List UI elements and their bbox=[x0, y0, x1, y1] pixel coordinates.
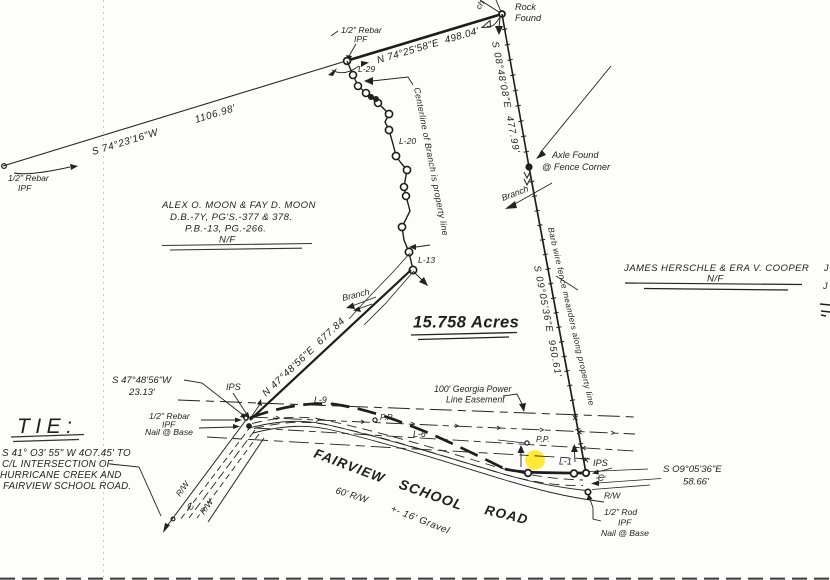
svg-text:L-29: L-29 bbox=[358, 64, 375, 74]
svg-text:L-13: L-13 bbox=[418, 255, 435, 265]
svg-text:IPF: IPF bbox=[18, 183, 32, 193]
svg-text:Found: Found bbox=[515, 13, 542, 23]
svg-text:23.13': 23.13' bbox=[128, 387, 156, 398]
svg-text:N/F: N/F bbox=[219, 235, 236, 246]
svg-text:15.758 Acres: 15.758 Acres bbox=[413, 314, 519, 332]
svg-text:S 41° O3' 55" W 4O7.45' TO: S 41° O3' 55" W 4O7.45' TO bbox=[2, 448, 131, 459]
svg-text:IPS: IPS bbox=[226, 382, 242, 392]
svg-text:Barb wire fence meanders along: Barb wire fence meanders along property … bbox=[546, 226, 596, 406]
svg-text:1106.98': 1106.98' bbox=[194, 103, 238, 126]
svg-text:P.B.-13, PG.-266.: P.B.-13, PG.-266. bbox=[185, 224, 266, 235]
svg-text:Nail @ Base: Nail @ Base bbox=[145, 427, 193, 437]
svg-text:IPS: IPS bbox=[593, 458, 609, 468]
svg-text:R/W: R/W bbox=[604, 491, 621, 501]
svg-text:SCHOOL: SCHOOL bbox=[397, 476, 466, 513]
svg-text:D.B.-7Y, PG'S.-377 & 378.: D.B.-7Y, PG'S.-377 & 378. bbox=[170, 212, 292, 223]
svg-text:C: C bbox=[185, 501, 197, 513]
svg-text:ch: ch bbox=[473, 0, 486, 11]
svg-text:R/W: R/W bbox=[198, 496, 216, 516]
svg-text:R/W: R/W bbox=[174, 478, 192, 498]
svg-text:N 47°48'56"E 677.84: N 47°48'56"E 677.84 bbox=[260, 316, 347, 399]
svg-text:L-20: L-20 bbox=[399, 136, 416, 146]
svg-text:Line Easement: Line Easement bbox=[446, 395, 505, 405]
svg-text:HURRICANE CREEK AND: HURRICANE CREEK AND bbox=[0, 470, 122, 481]
svg-text:JAMES HERSCHLE & ERA V. COOPER: JAMES HERSCHLE & ERA V. COOPER bbox=[623, 263, 809, 274]
svg-text:FAIRVIEW: FAIRVIEW bbox=[312, 446, 387, 486]
svg-text:N/F: N/F bbox=[707, 274, 724, 285]
svg-text:IPF: IPF bbox=[354, 34, 368, 44]
svg-text:L-9: L-9 bbox=[314, 395, 327, 405]
svg-text:IPF: IPF bbox=[618, 518, 632, 528]
svg-text:Nail @ Base: Nail @ Base bbox=[601, 528, 649, 538]
svg-text:ROAD: ROAD bbox=[483, 502, 530, 527]
svg-text:Centerline of Branch is proper: Centerline of Branch is property line bbox=[412, 86, 451, 236]
svg-text:+- 16' Gravel: +- 16' Gravel bbox=[389, 504, 452, 537]
svg-text:J: J bbox=[822, 281, 828, 291]
svg-text:L-6: L-6 bbox=[413, 429, 426, 439]
svg-text:Branch: Branch bbox=[500, 184, 530, 203]
svg-text:@ Fence Corner: @ Fence Corner bbox=[542, 162, 611, 172]
svg-text:58.66': 58.66' bbox=[683, 477, 710, 488]
svg-text:S 74°23'16"W: S 74°23'16"W bbox=[91, 127, 161, 158]
svg-text:C/L INTERSECTION OF: C/L INTERSECTION OF bbox=[2, 459, 114, 470]
svg-text:ALEX O. MOON & FAY D. MOON: ALEX O. MOON & FAY D. MOON bbox=[161, 200, 316, 211]
svg-text:60' R/W: 60' R/W bbox=[334, 484, 370, 505]
svg-text:Axle Found: Axle Found bbox=[551, 150, 599, 160]
svg-text:1/2" Rebar: 1/2" Rebar bbox=[8, 173, 50, 183]
svg-text:Rock: Rock bbox=[515, 2, 536, 12]
svg-text:S 47°48'56"W: S 47°48'56"W bbox=[112, 375, 172, 386]
svg-text:P.P.: P.P. bbox=[536, 434, 550, 444]
svg-text:P.P.: P.P. bbox=[380, 412, 394, 422]
svg-text:1/2" Rod: 1/2" Rod bbox=[604, 507, 637, 517]
svg-text:100' Georgia Power: 100' Georgia Power bbox=[434, 384, 513, 394]
svg-text:S O9°05'36"E: S O9°05'36"E bbox=[663, 464, 722, 475]
svg-text:J: J bbox=[823, 263, 829, 273]
svg-text:FAIRVIEW SCHOOL ROAD.: FAIRVIEW SCHOOL ROAD. bbox=[3, 481, 131, 492]
